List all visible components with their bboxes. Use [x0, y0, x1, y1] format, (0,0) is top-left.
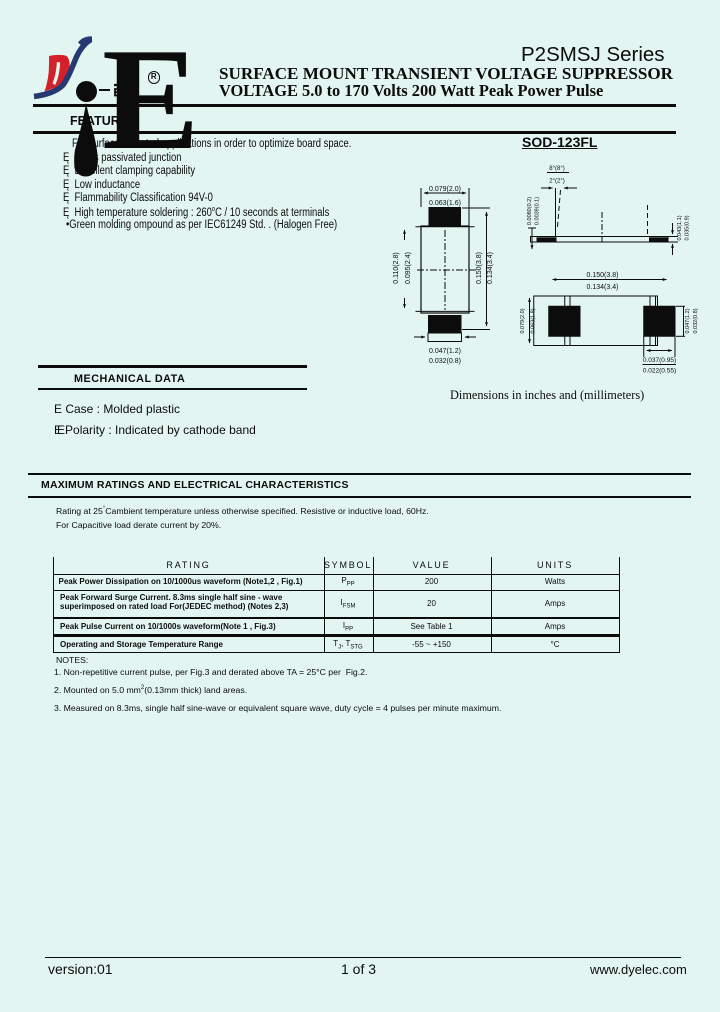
- svg-text:0.063(1.6): 0.063(1.6): [429, 200, 461, 207]
- svg-text:0.079(2.0): 0.079(2.0): [429, 186, 461, 193]
- svg-text:0.063(1.8): 0.063(1.8): [531, 308, 537, 333]
- svg-text:0.134(3.4): 0.134(3.4): [487, 252, 494, 284]
- svg-text:0.150(3.8): 0.150(3.8): [587, 272, 619, 279]
- svg-text:0.037(0.95): 0.037(0.95): [643, 357, 676, 364]
- svg-text:0.150(3.8): 0.150(3.8): [476, 252, 483, 284]
- svg-text:0.022(0.55): 0.022(0.55): [643, 368, 676, 375]
- svg-text:0.095(2.4): 0.095(2.4): [405, 252, 412, 284]
- svg-text:0.043(1.1): 0.043(1.1): [677, 215, 683, 240]
- svg-text:0.110(2.8): 0.110(2.8): [393, 252, 400, 283]
- svg-text:2°(2°): 2°(2°): [549, 179, 564, 185]
- svg-text:0.035(0.9): 0.035(0.9): [685, 215, 691, 240]
- svg-text:0.047(1.2): 0.047(1.2): [429, 348, 461, 355]
- svg-text:0.0080(0.2): 0.0080(0.2): [527, 197, 533, 225]
- svg-text:8°(8°): 8°(8°): [549, 166, 564, 172]
- svg-text:0.047(1.2): 0.047(1.2): [685, 308, 691, 333]
- svg-text:0.032(0.8): 0.032(0.8): [693, 308, 699, 333]
- svg-text:0.032(0.8): 0.032(0.8): [429, 358, 461, 365]
- svg-text:0.0039(0.1): 0.0039(0.1): [535, 197, 541, 225]
- svg-text:0.079(2.0): 0.079(2.0): [520, 308, 526, 333]
- svg-text:0.134(3.4): 0.134(3.4): [587, 284, 619, 291]
